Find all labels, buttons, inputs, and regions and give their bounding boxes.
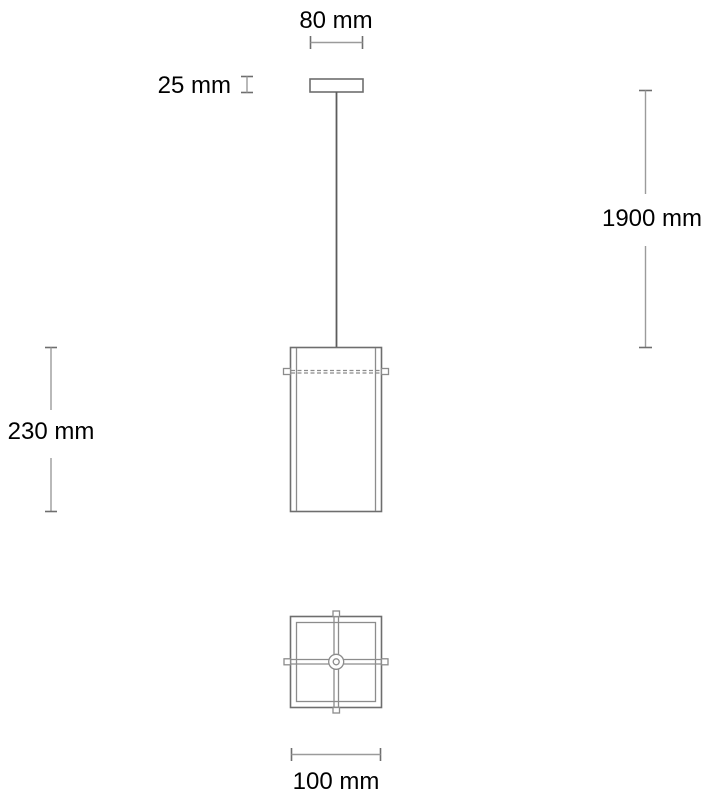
canopy xyxy=(310,79,363,92)
cord-length-label: 1900 mm xyxy=(602,205,702,232)
dim-shade-height: 230 mm xyxy=(8,348,95,512)
shade-left-mount-tab xyxy=(284,369,291,375)
shade-width-label: 100 mm xyxy=(293,768,380,794)
dim-canopy-width: 80 mm xyxy=(299,7,372,49)
mount-tab-left xyxy=(284,659,291,665)
technical-drawing-page: 80 mm 25 mm 1900 mm xyxy=(0,0,706,794)
socket-inner-circle xyxy=(333,659,339,665)
shade-right-mount-tab xyxy=(382,369,389,375)
bottom-view xyxy=(284,611,388,713)
canopy-height-label: 25 mm xyxy=(158,72,231,99)
mount-tab-bottom xyxy=(333,708,340,714)
dim-shade-width: 100 mm xyxy=(292,748,381,794)
dim-canopy-height: 25 mm xyxy=(158,72,253,99)
shade-outline xyxy=(291,348,382,512)
pendant-lamp-dimension-drawing: 80 mm 25 mm 1900 mm xyxy=(0,0,706,794)
canopy-width-label: 80 mm xyxy=(299,7,372,34)
mount-tab-right xyxy=(382,659,389,665)
shade-height-label: 230 mm xyxy=(8,418,95,445)
dim-cord-length: 1900 mm xyxy=(602,91,702,348)
front-view xyxy=(284,79,389,512)
mount-tab-top xyxy=(333,611,340,617)
